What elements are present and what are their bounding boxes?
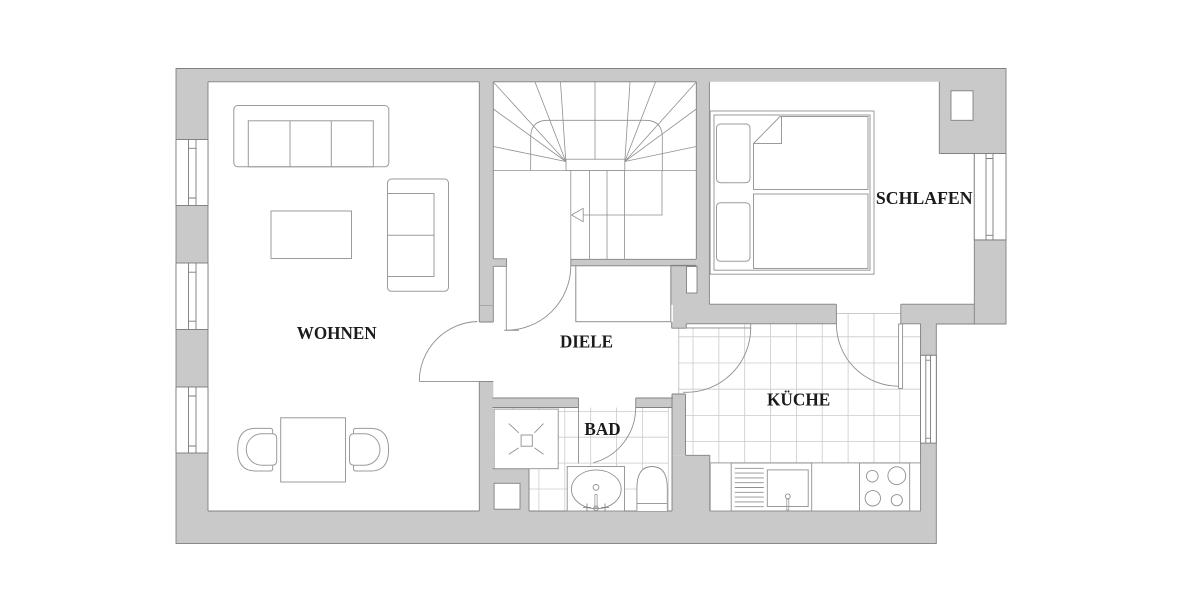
svg-text:BAD: BAD	[584, 419, 620, 439]
svg-text:WOHNEN: WOHNEN	[297, 323, 377, 343]
svg-text:SCHLAFEN: SCHLAFEN	[876, 188, 973, 208]
svg-text:DIELE: DIELE	[560, 332, 613, 352]
svg-text:KÜCHE: KÜCHE	[767, 390, 830, 410]
